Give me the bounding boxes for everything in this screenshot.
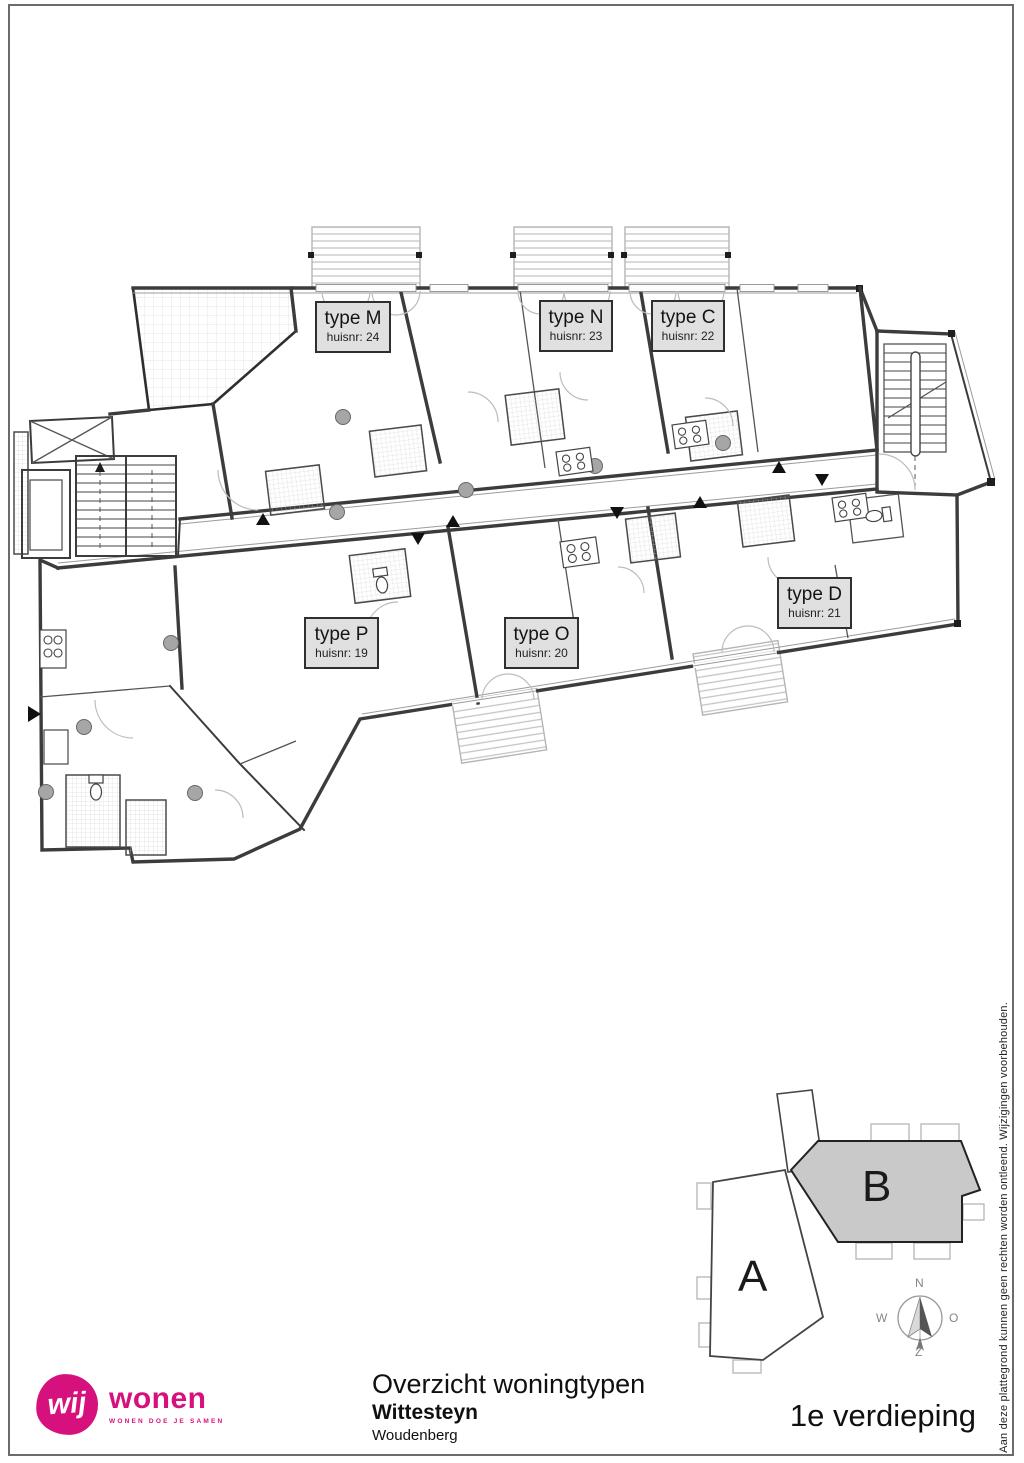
title-block: Overzicht woningtypen Wittesteyn Woudenb… [372, 1368, 645, 1445]
unit-type: type D [779, 584, 850, 605]
compass-rose [898, 1296, 942, 1351]
bathrooms [14, 389, 903, 855]
unit-huisnr: huisnr: 21 [779, 605, 850, 621]
unit-huisnr: huisnr: 20 [506, 645, 577, 661]
project-name: Wittesteyn [372, 1400, 645, 1426]
stairwell-left [22, 417, 176, 558]
stairwell-right [877, 331, 957, 495]
site-map [697, 1090, 984, 1373]
floor-label: 1e verdieping [790, 1398, 976, 1434]
unit-type: type N [541, 307, 611, 328]
compass-west-label: W [876, 1311, 887, 1325]
balcony-row-top [308, 227, 731, 289]
plan-sheet: type M huisnr: 24 type N huisnr: 23 type… [0, 0, 1024, 1463]
disclaimer-text: Aan deze plattegrond kunnen geen rechten… [998, 1002, 1010, 1453]
unit-type: type M [317, 308, 389, 329]
floor-plan-drawing [0, 0, 1024, 1463]
logo-blob: wij [34, 1372, 100, 1437]
building-b-label: B [862, 1162, 891, 1212]
unit-label-type-m: type M huisnr: 24 [315, 301, 391, 353]
compass-east-label: O [949, 1311, 958, 1325]
unit-huisnr: huisnr: 22 [653, 328, 723, 344]
compass-south-label: Z [915, 1345, 922, 1359]
sheet-title: Overzicht woningtypen [372, 1368, 645, 1400]
building-a-label: A [738, 1252, 767, 1302]
unit-label-type-n: type N huisnr: 23 [539, 300, 613, 352]
project-city: Woudenberg [372, 1426, 645, 1445]
unit-label-type-c: type C huisnr: 22 [651, 300, 725, 352]
unit-label-type-o: type O huisnr: 20 [504, 617, 579, 669]
logo-mark-text: wij [47, 1387, 88, 1423]
unit-type: type O [506, 624, 577, 645]
logo-tagline: WONEN DOE JE SAMEN [109, 1418, 224, 1425]
unit-type: type C [653, 307, 723, 328]
unit-huisnr: huisnr: 23 [541, 328, 611, 344]
unit-label-type-p: type P huisnr: 19 [304, 617, 379, 669]
unit-type: type P [306, 624, 377, 645]
unit-huisnr: huisnr: 19 [306, 645, 377, 661]
unit-label-type-d: type D huisnr: 21 [777, 577, 852, 629]
compass-north-label: N [915, 1276, 924, 1290]
wij-wonen-logo: wij wonen WONEN DOE JE SAMEN [36, 1374, 224, 1435]
logo-name: wonen [109, 1384, 224, 1414]
roof-terrace [133, 288, 296, 410]
unit-huisnr: huisnr: 24 [317, 329, 389, 345]
